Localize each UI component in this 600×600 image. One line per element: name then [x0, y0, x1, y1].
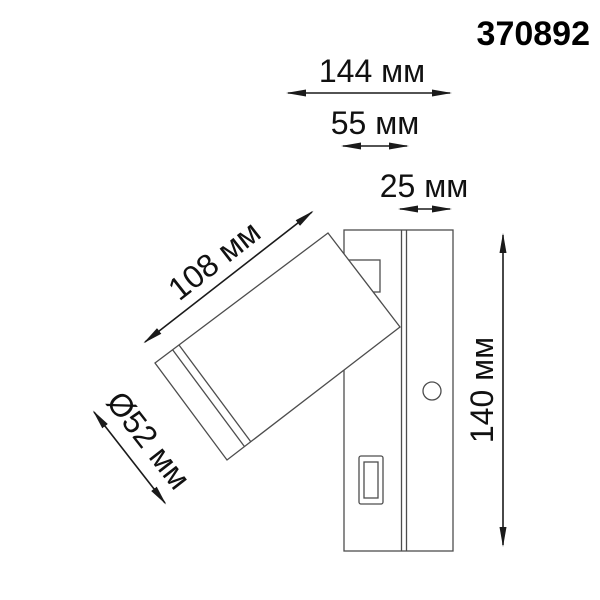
switch-button — [423, 382, 441, 400]
dim-label-height: 140 мм — [464, 337, 500, 443]
product-code: 370892 — [477, 15, 590, 53]
technical-drawing: 370892 144 мм 55 мм 25 мм 108 мм Ø52 мм … — [0, 0, 600, 600]
usb-port-inner — [364, 462, 378, 498]
usb-port-outer — [359, 456, 383, 504]
drawing-canvas: 370892 144 мм 55 мм 25 мм 108 мм Ø52 мм … — [0, 0, 600, 600]
dim-label-total-depth: 144 мм — [319, 53, 425, 89]
dim-label-plate-thickness: 25 мм — [380, 168, 468, 204]
dim-label-base-depth: 55 мм — [331, 105, 419, 141]
